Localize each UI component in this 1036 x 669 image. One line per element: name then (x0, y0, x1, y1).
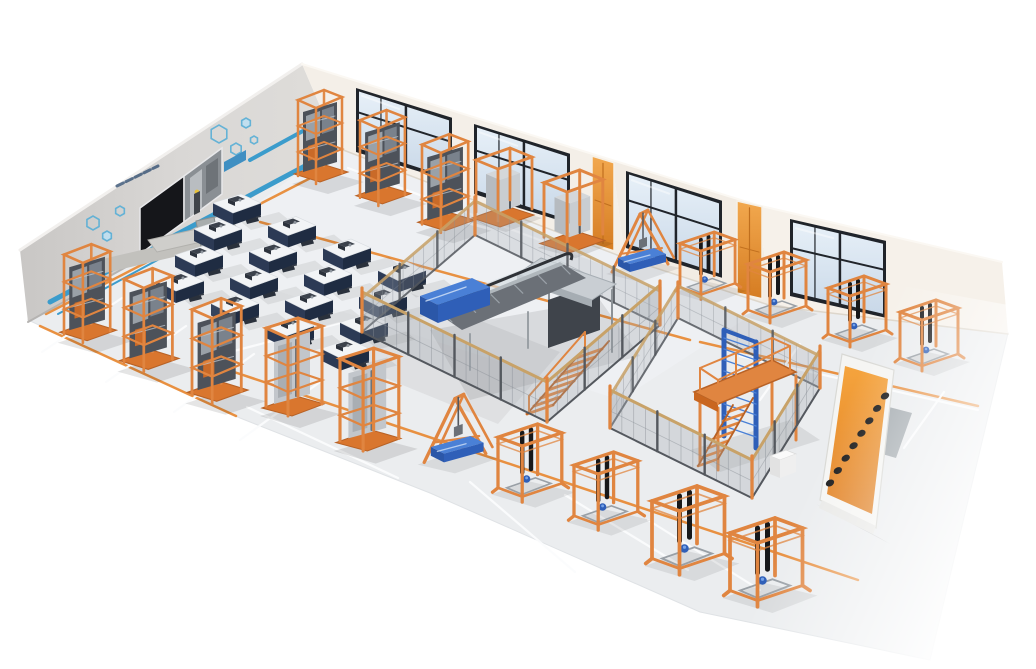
hexagon-decal (242, 118, 251, 128)
facility-3d-render (0, 0, 1036, 669)
training-workshop-scene (0, 0, 1036, 669)
hexagon-decal (103, 231, 112, 241)
